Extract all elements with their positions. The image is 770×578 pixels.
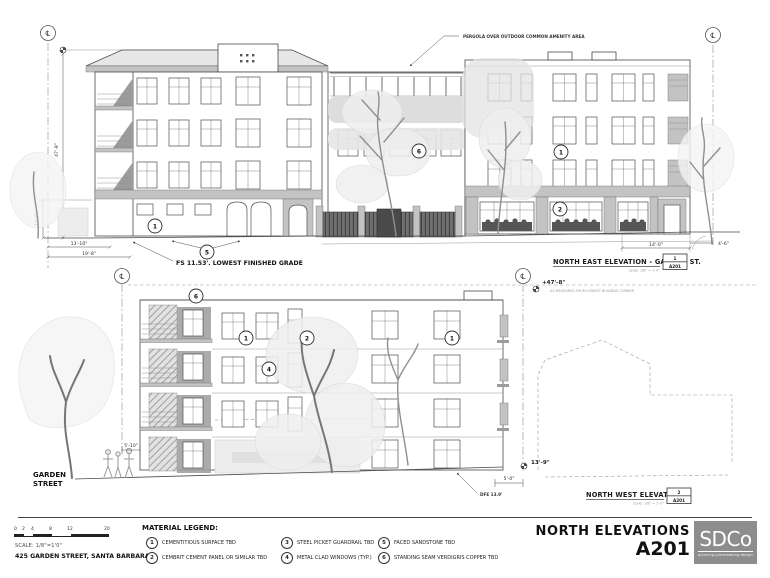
- svg-text:2: 2: [678, 490, 681, 495]
- titleblock-divider: [18, 517, 752, 518]
- legend-key-4: 4: [281, 552, 293, 564]
- legend-key-3: 3: [281, 537, 293, 549]
- logo-tagline: planning.placemaking.design: [698, 551, 753, 557]
- logo-text: SDCo: [699, 529, 751, 549]
- legend-item: 6 STANDING SEAM VERDIGRIS COPPER TBD: [378, 552, 498, 564]
- callout-nw-1b: 1: [445, 331, 459, 345]
- legend-item: 5 FACED SANDSTONE TBD: [378, 537, 455, 549]
- scale-tick: 4: [31, 527, 34, 532]
- dim-e: 5'-0": [504, 476, 515, 482]
- entry-gate: [377, 209, 401, 237]
- callout-nw-2: 2: [300, 331, 314, 345]
- dfe-annotation: DFE 13.9': [480, 492, 502, 497]
- legend-item: 1 CEMENTITIOUS SURFACE TBD: [146, 537, 236, 549]
- northeast-elevation-drawing: ℄ ℄ 47'-8" 10'-6" 13'-10" 19'-8": [10, 26, 740, 273]
- svg-text:6: 6: [417, 148, 421, 155]
- ne-detail-badge: 1 A201: [663, 254, 687, 270]
- legend-key-6: 6: [378, 552, 390, 564]
- scale-tick: 0: [14, 527, 17, 532]
- nw-title-block: NORTH WEST ELEVATION scale: 1/8" = 1'-0"…: [586, 488, 691, 506]
- scale-tick: 20: [104, 527, 110, 532]
- drawing-sheet: ℄ ℄ 47'-8" 10'-6" 13'-10" 19'-8": [0, 0, 770, 578]
- svg-text:5: 5: [205, 249, 209, 256]
- legend-key-5: 5: [378, 537, 390, 549]
- legend-key-1: 1: [146, 537, 158, 549]
- project-address: 425 GARDEN STREET, SANTA BARBARA: [15, 553, 150, 560]
- callout-ne-2: 2: [553, 202, 567, 216]
- dim-setback: 5'-10": [124, 443, 138, 449]
- dim-right-height: 13'-9": [531, 460, 550, 466]
- svg-text:A201: A201: [673, 498, 685, 503]
- sheet-title-block: NORTH ELEVATIONS A201: [535, 524, 690, 560]
- centerline-symbol: ℄: [521, 272, 526, 281]
- legend-item: 3 STEEL PICKET GUARDRAIL TBD: [281, 537, 374, 549]
- ne-left-building: [86, 44, 328, 236]
- nw-detail-badge: 2 A201: [667, 488, 691, 504]
- grade-annotation: FS 11.53'. LOWEST FINISHED GRADE: [133, 242, 303, 267]
- svg-text:1: 1: [153, 223, 157, 230]
- svg-text:2: 2: [558, 206, 562, 213]
- sheet-title: NORTH ELEVATIONS: [535, 524, 690, 539]
- dim-right-b: 4'-6": [718, 241, 729, 247]
- nw-scale-note: scale: 1/8" = 1'-0": [633, 502, 664, 506]
- sheet-number: A201: [535, 538, 690, 560]
- centerline-symbol: ℄: [120, 272, 125, 281]
- dim-building-height: 47'-8": [54, 143, 60, 157]
- adjacent-building-outline: [538, 340, 732, 477]
- dim-setback-a: 13'-10": [71, 241, 88, 247]
- firm-logo: SDCo planning.placemaking.design: [694, 521, 757, 564]
- ne-scale-note: scale: 1/8" = 1'-0": [629, 269, 660, 273]
- ne-title-block: NORTH EAST ELEVATION - GARDEN ST. scale:…: [553, 254, 701, 273]
- svg-text:FS 11.53'. LOWEST FINISHED GRA: FS 11.53'. LOWEST FINISHED GRADE: [176, 260, 303, 267]
- centerline-symbol: ℄: [711, 31, 716, 40]
- svg-text:6: 6: [194, 293, 198, 300]
- callout-ne-1: 1: [148, 219, 162, 233]
- callout-nw-1: 1: [239, 331, 253, 345]
- callout-nw-4: 4: [262, 362, 276, 376]
- elevations-drawing: ℄ ℄ 47'-8" 10'-6" 13'-10" 19'-8": [0, 0, 770, 516]
- svg-text:A201: A201: [669, 264, 681, 269]
- dim-right-a: 14'-0": [649, 242, 663, 248]
- dim-setback-b: 19'-8": [82, 251, 96, 257]
- callout-nw-6: 6: [189, 289, 203, 303]
- centerline-symbol: ℄: [46, 29, 51, 38]
- callout-ne-5: 5: [172, 241, 240, 259]
- svg-text:1: 1: [559, 149, 563, 156]
- callout-ne-6: 6: [412, 144, 426, 158]
- svg-text:1: 1: [674, 256, 677, 261]
- scale-tick: 2: [22, 527, 25, 532]
- datum-note: AS MEASURED FROM LOWEST BUILDING CORNER: [550, 289, 635, 293]
- datum-height: +47'-8": [542, 280, 565, 286]
- svg-text:1: 1: [244, 335, 248, 342]
- scale-tick: 8: [49, 527, 52, 532]
- graphic-scale-bar: 0 2 4 8 12 20: [14, 527, 114, 543]
- legend-item: 4 METAL CLAD WINDOWS (TYP.): [281, 552, 372, 564]
- street-label-1: GARDEN: [33, 471, 66, 479]
- northwest-elevation-drawing: 6 1 2 4 1 5'-10" GARDEN STREET 13'-9" 5'…: [19, 289, 732, 506]
- utility-box: [58, 208, 88, 236]
- material-legend: MATERIAL LEGEND: 1 CEMENTITIOUS SURFACE …: [142, 524, 602, 535]
- legend-key-2: 2: [146, 552, 158, 564]
- svg-text:4: 4: [267, 366, 271, 373]
- street-label-2: STREET: [33, 480, 63, 488]
- svg-text:2: 2: [305, 335, 309, 342]
- scale-label: SCALE: 1/8"=1'0": [15, 543, 62, 549]
- callout-ne-1b: 1: [554, 145, 568, 159]
- svg-text:PERGOLA OVER OUTDOOR COMMON AM: PERGOLA OVER OUTDOOR COMMON AMENITY AREA: [463, 34, 585, 39]
- legend-item: 2 CEMBRIT CEMENT PANEL OR SIMILAR TBD: [146, 552, 267, 564]
- legend-heading: MATERIAL LEGEND:: [142, 524, 602, 532]
- svg-text:1: 1: [450, 335, 454, 342]
- ne-dimensions-right: 14'-0" 4'-6": [621, 234, 729, 252]
- scale-tick: 12: [67, 527, 73, 532]
